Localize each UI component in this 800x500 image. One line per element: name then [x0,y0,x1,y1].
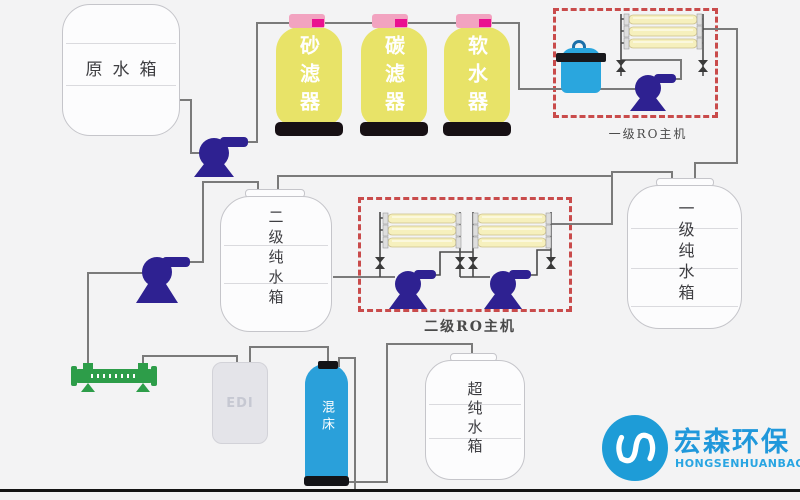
company-logo-icon [602,415,668,481]
cartridge-filter-band [556,53,606,62]
ro2-feed-pump [136,257,190,303]
process-flow-diagram: 一级RO主机 二级RO主机 原水箱 砂滤器 碳滤器 软水器 二级纯水箱 [0,0,800,500]
tank-seam [631,306,738,307]
tank-seam [66,85,176,86]
carbon-filter-valve-cap [372,14,408,28]
mixed-bed-bottom-cap [304,476,349,486]
ro1-membrane-stack [624,14,702,49]
stage1-pure-water-tank: 一级纯水箱 [627,185,742,329]
ultra-pure-tank-label: 超纯水箱 [465,381,486,457]
uv-foot [81,383,95,392]
sand-filter-label: 砂滤器 [295,35,324,119]
raw-water-tank-label: 原水箱 [63,55,179,80]
raw-water-pump [194,137,248,177]
mixed-bed-label: 混床 [317,400,336,434]
uv-sterilizer [75,369,153,383]
carbon-filter-vessel: 碳滤器 [361,27,427,125]
raw-water-tank: 原水箱 [62,4,180,136]
sand-filter-valve-cap [289,14,325,28]
stage1-tank-label: 一级纯水箱 [673,200,697,305]
ro1-high-pressure-pump [630,74,676,111]
logo-monogram-icon [611,424,659,472]
ro2-membrane-stack-a [383,213,461,248]
softener-base [443,122,511,136]
sand-filter-vessel: 砂滤器 [276,27,342,125]
stage2-pure-water-tank: 二级纯水箱 [220,196,332,332]
company-name-cn: 宏森环保 [674,420,790,459]
mixed-bed-top-cap [318,361,338,369]
carbon-filter-base [360,122,428,136]
ro2-pump-a [389,270,436,309]
cap-connector [479,19,491,27]
sand-filter-base [275,122,343,136]
softener-valve-cap [456,14,492,28]
tank-seam [66,43,176,44]
uv-foot [136,383,150,392]
uv-sterilizer-markings [91,374,137,378]
cap-connector [395,19,407,27]
ro-stage2-label: 二级RO主机 [405,316,535,336]
cap-connector [312,19,324,27]
softener-vessel: 软水器 [444,27,510,125]
softener-label: 软水器 [463,35,492,119]
edi-module: EDI [212,362,268,444]
mixed-bed-column: 混床 [305,364,348,486]
stage2-tank-label: 二级纯水箱 [266,209,287,309]
ro-stage1-label: 一级RO主机 [588,125,708,142]
edi-label: EDI [226,396,254,411]
ultra-pure-water-tank: 超纯水箱 [425,360,525,480]
bottom-border-line [0,489,800,492]
carbon-filter-label: 碳滤器 [380,35,409,119]
company-name-en: HONGSENHUANBAO [675,457,800,470]
ro2-membrane-stack-b [473,213,551,248]
ro2-pump-b [484,270,531,309]
